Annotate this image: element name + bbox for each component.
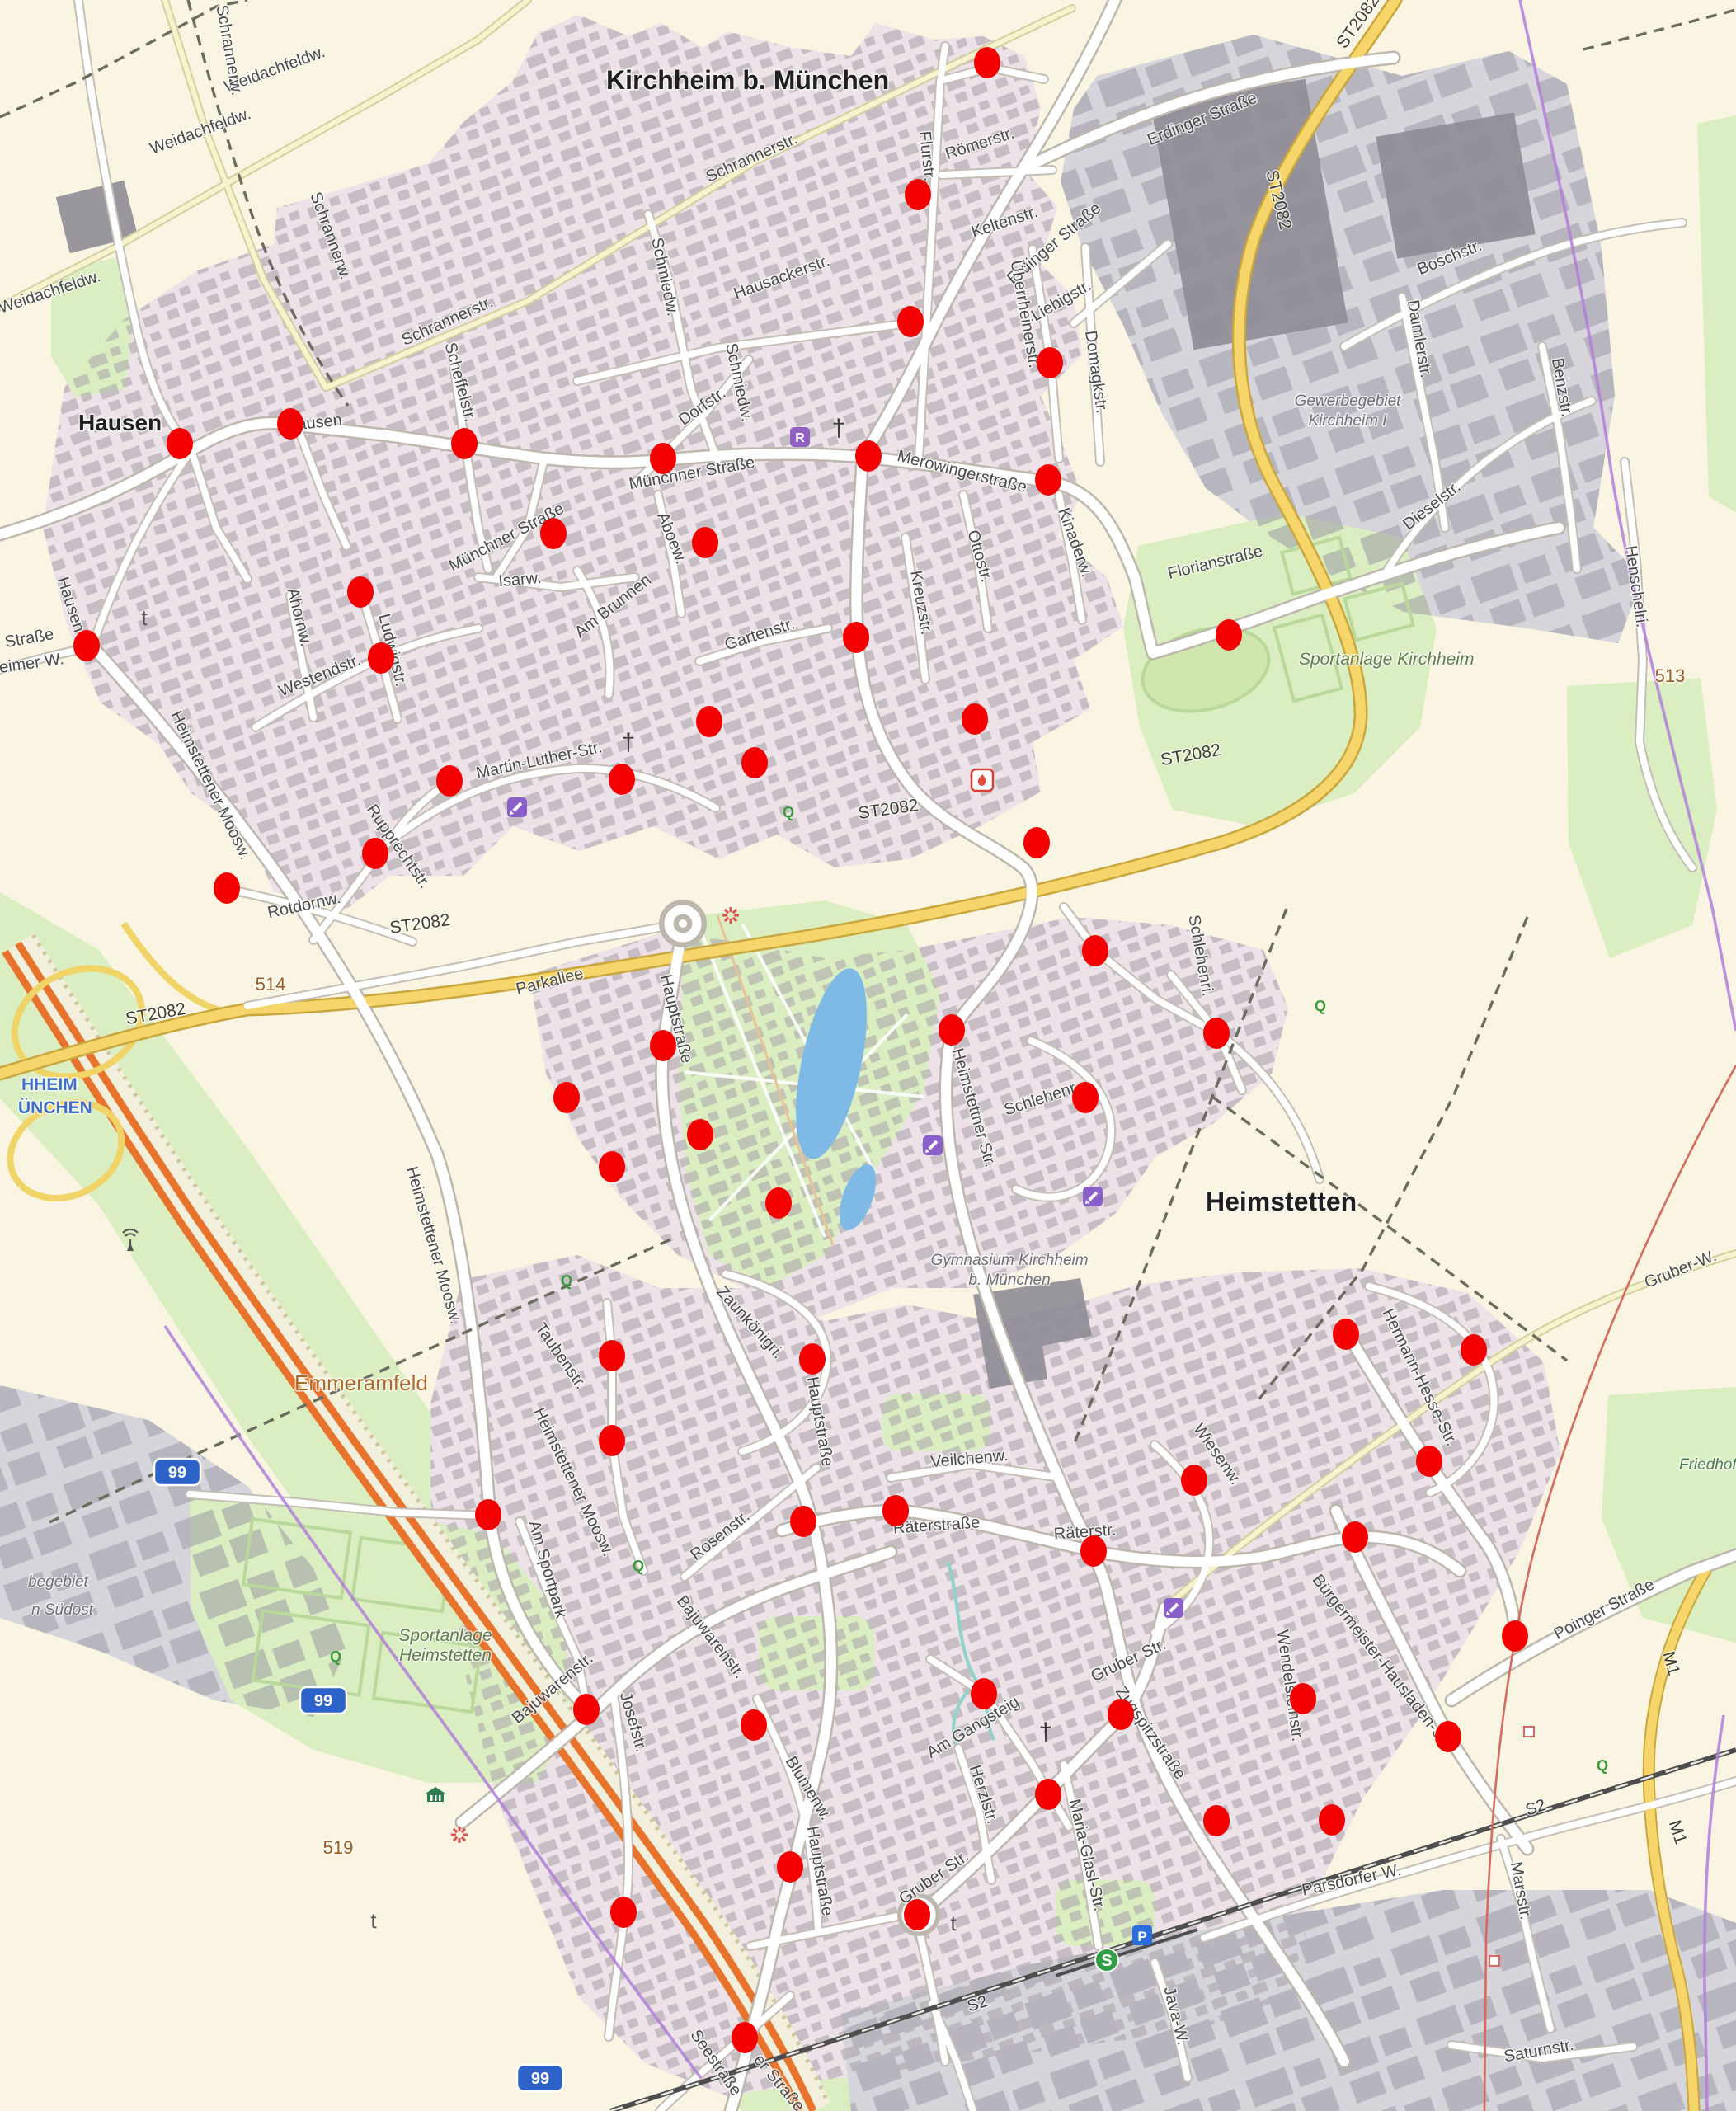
map-canvas[interactable]: †††tttRSPQQQQQQ Weidachfeldw.Weidachfeld… [0,0,1736,2111]
cross-icon: t [370,1908,377,1933]
red-marker-dot[interactable] [167,428,193,459]
place-label: Sportanlage Kirchheim [1299,650,1474,669]
svg-text:R: R [795,431,805,445]
spring-icon: Q [633,1558,644,1574]
motorway-shield: 99 [154,1459,200,1485]
red-marker-dot[interactable] [1416,1446,1442,1477]
school-icon [507,797,527,817]
svg-text:P: P [1137,1929,1146,1944]
spring-icon: Q [1315,998,1326,1014]
red-marker-dot[interactable] [436,765,463,797]
red-marker-dot[interactable] [214,872,240,904]
red-marker-dot[interactable] [897,306,924,337]
red-marker-dot[interactable] [1502,1620,1528,1652]
red-marker-dot[interactable] [1290,1683,1316,1714]
motorway-shield: 99 [300,1687,346,1714]
red-marker-dot[interactable] [971,1678,997,1709]
red-marker-dot[interactable] [904,1899,930,1930]
svg-text:Q: Q [561,1272,572,1289]
red-marker-dot[interactable] [610,1897,637,1928]
svg-text:Q: Q [1315,998,1326,1014]
red-marker-dot[interactable] [368,642,394,674]
red-marker-dot[interactable] [974,47,1000,78]
red-marker-dot[interactable] [1108,1699,1134,1730]
route-ref-label: 514 [256,974,286,994]
red-marker-dot[interactable] [1082,935,1108,966]
school-icon [1083,1187,1103,1206]
red-marker-dot[interactable] [1035,1779,1061,1810]
place-label: Hausen [78,410,162,435]
red-marker-dot[interactable] [962,703,988,735]
church-icon: † [1039,1718,1053,1746]
svg-text:†: † [622,729,636,756]
red-marker-dot[interactable] [855,440,882,472]
red-marker-dot[interactable] [1181,1465,1207,1496]
red-marker-dot[interactable] [475,1499,501,1530]
fire-icon [972,769,993,791]
spring-icon: Q [1597,1757,1608,1774]
place-label: HHEIM [21,1075,78,1094]
cross-icon: t [950,1911,957,1935]
svg-text:t: t [950,1911,957,1935]
svg-text:Q: Q [633,1558,644,1574]
red-marker-dot[interactable] [1461,1334,1487,1366]
svg-text:99: 99 [531,2070,549,2088]
svg-text:99: 99 [314,1692,332,1710]
red-marker-dot[interactable] [741,1709,767,1741]
map-svg[interactable]: †††tttRSPQQQQQQ Weidachfeldw.Weidachfeld… [0,0,1736,2111]
red-marker-dot[interactable] [765,1187,792,1219]
red-marker-dot[interactable] [599,1151,625,1182]
church-icon: † [622,729,636,756]
red-marker-dot[interactable] [1037,347,1063,378]
route-ref-label: 513 [1655,665,1686,686]
red-marker-dot[interactable] [1342,1521,1368,1553]
red-marker-dot[interactable] [650,443,676,474]
svg-text:99: 99 [168,1464,186,1482]
red-marker-dot[interactable] [799,1343,826,1375]
place-label: Emmeramfeld [294,1371,428,1395]
red-marker-dot[interactable] [1035,464,1061,496]
sbahn-icon: S [1095,1949,1118,1972]
route-ref-label: 519 [323,1837,354,1858]
red-marker-dot[interactable] [1080,1535,1107,1567]
red-marker-dot[interactable] [939,1014,965,1046]
red-marker-dot[interactable] [73,630,100,661]
svg-text:S: S [1101,1952,1112,1970]
red-marker-dot[interactable] [905,179,931,210]
motorway-shield: 99 [517,2065,563,2091]
parking-icon: P [1132,1925,1152,1945]
red-marker-dot[interactable] [741,747,768,778]
red-marker-dot[interactable] [1023,827,1050,858]
red-marker-dot[interactable] [687,1119,713,1150]
red-marker-dot[interactable] [1203,1018,1230,1049]
red-marker-dot[interactable] [573,1694,600,1725]
red-marker-dot[interactable] [277,408,303,440]
svg-text:t: t [370,1908,377,1933]
svg-text:†: † [832,415,846,442]
red-marker-dot[interactable] [1319,1804,1345,1836]
spring-icon: Q [330,1648,341,1665]
spring-icon: Q [783,804,794,820]
svg-text:Q: Q [1597,1757,1608,1774]
red-marker-dot[interactable] [777,1851,803,1883]
red-marker-dot[interactable] [347,576,374,608]
red-marker-dot[interactable] [599,1340,625,1371]
red-marker-dot[interactable] [843,622,869,653]
place-label: Kirchheim b. München [606,65,889,95]
church-icon: † [832,415,846,442]
spring-icon: Q [561,1272,572,1289]
recycle-icon: R [790,427,810,447]
place-label: SportanlageHeimstetten [398,1626,492,1665]
red-marker-dot[interactable] [1072,1082,1099,1113]
place-label: Friedhof Heimstetten [1679,1456,1736,1474]
place-label: ÜNCHEN [18,1098,92,1117]
place-label: begebiet [28,1573,89,1591]
cross-icon: t [141,605,148,630]
red-marker-dot[interactable] [790,1506,816,1537]
red-marker-dot[interactable] [1216,619,1242,651]
red-marker-dot[interactable] [696,706,722,737]
red-marker-dot[interactable] [1333,1319,1359,1350]
svg-text:Q: Q [330,1648,341,1665]
school-icon [1164,1598,1183,1618]
svg-text:†: † [1039,1718,1053,1746]
school-icon [923,1135,943,1155]
place-label: n Südost [31,1601,94,1619]
red-marker-dot[interactable] [599,1425,625,1456]
red-marker-dot[interactable] [553,1082,580,1113]
red-marker-dot[interactable] [451,428,478,459]
red-marker-dot[interactable] [1203,1805,1230,1836]
svg-text:t: t [141,605,148,630]
place-label: Heimstetten [1206,1187,1357,1216]
red-marker-dot[interactable] [609,764,635,795]
red-marker-dot[interactable] [650,1030,676,1061]
red-marker-dot[interactable] [882,1495,909,1526]
svg-text:Q: Q [783,804,794,820]
red-marker-dot[interactable] [1435,1721,1461,1752]
red-marker-dot[interactable] [362,838,388,869]
street-label: Isarw. [497,569,542,590]
red-marker-dot[interactable] [692,527,718,558]
red-marker-dot[interactable] [540,518,567,549]
red-marker-dot[interactable] [732,2022,758,2053]
